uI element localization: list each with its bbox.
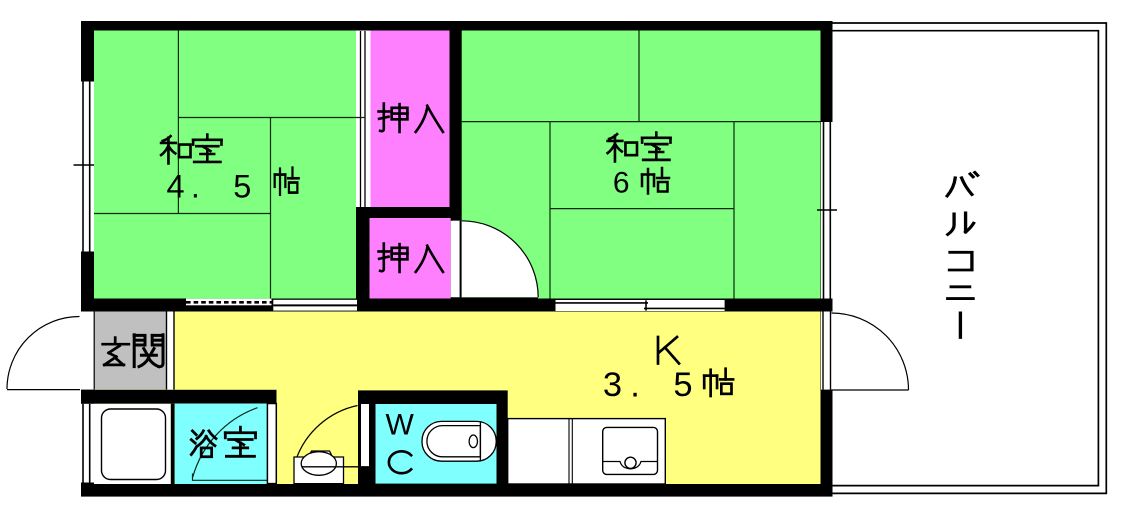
svg-text:5: 5 (233, 169, 251, 205)
svg-text:.: . (191, 169, 200, 205)
svg-text:3: 3 (603, 366, 622, 404)
svg-text:W: W (386, 409, 415, 442)
svg-text:4: 4 (166, 169, 184, 205)
svg-text:.: . (630, 367, 640, 405)
svg-text:5: 5 (673, 366, 692, 404)
svg-text:6: 6 (613, 166, 630, 199)
